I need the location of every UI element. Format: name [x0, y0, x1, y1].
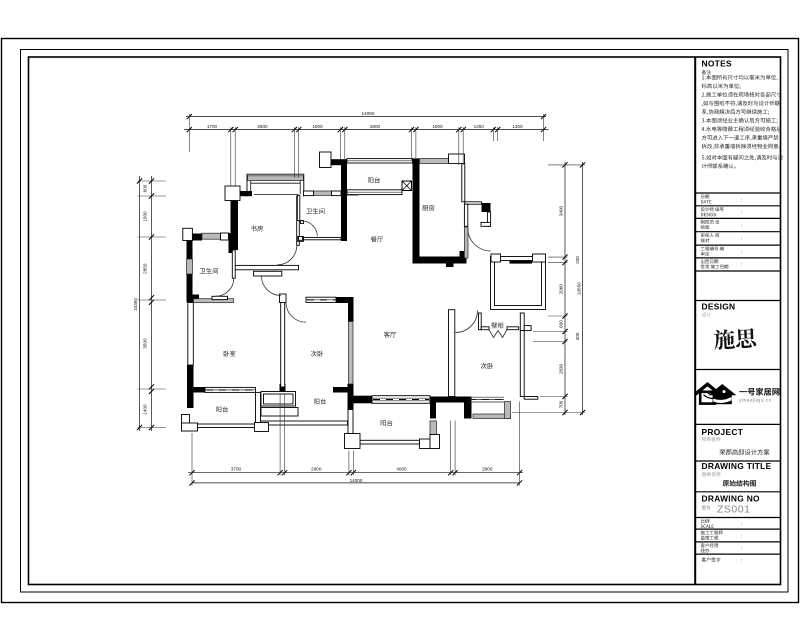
svg-text:PROJECT: PROJECT	[702, 427, 744, 437]
svg-text:1250: 1250	[474, 124, 485, 129]
svg-text::: :	[741, 547, 742, 552]
svg-text::: :	[741, 534, 742, 539]
svg-text::: :	[741, 237, 742, 242]
svg-text:10350: 10350	[133, 298, 138, 311]
svg-text:2800: 2800	[482, 467, 493, 472]
svg-text:1400: 1400	[142, 404, 147, 415]
svg-text::: :	[741, 523, 742, 528]
svg-text:2900: 2900	[311, 467, 322, 472]
svg-text:600: 600	[559, 320, 564, 328]
svg-text:200: 200	[575, 256, 580, 264]
svg-text:yihaojiaju.cn: yihaojiaju.cn	[739, 397, 772, 402]
svg-text:600: 600	[142, 184, 147, 192]
svg-text::: :	[741, 559, 742, 564]
svg-text:1500: 1500	[142, 211, 147, 222]
svg-text:NOTES: NOTES	[702, 59, 732, 69]
svg-text:2060: 2060	[559, 284, 564, 295]
svg-text:14000: 14000	[350, 478, 363, 483]
svg-text::: :	[741, 211, 742, 216]
svg-text::: :	[741, 263, 742, 268]
svg-text:400: 400	[575, 332, 580, 340]
svg-text:1700: 1700	[207, 124, 218, 129]
svg-text:DESIGN: DESIGN	[702, 302, 736, 312]
svg-text:1900: 1900	[432, 124, 443, 129]
svg-text:1300: 1300	[512, 124, 523, 129]
svg-text:1900: 1900	[312, 124, 323, 129]
svg-text::: :	[741, 224, 742, 229]
svg-text:3700: 3700	[231, 467, 242, 472]
svg-text:DRAWING NO: DRAWING NO	[702, 494, 761, 504]
svg-text:3500: 3500	[142, 338, 147, 349]
svg-text:2850: 2850	[142, 263, 147, 274]
svg-text::: :	[741, 250, 742, 255]
svg-text:4000: 4000	[396, 467, 407, 472]
svg-text:3400: 3400	[559, 205, 564, 216]
svg-text:2600: 2600	[257, 124, 268, 129]
svg-text:2830: 2830	[559, 363, 564, 374]
svg-text:ZS001: ZS001	[717, 503, 750, 515]
svg-text:14050: 14050	[362, 111, 375, 116]
svg-text:10550: 10550	[577, 282, 582, 295]
svg-text::: :	[741, 198, 742, 203]
svg-text:2800: 2800	[370, 124, 381, 129]
svg-text:700: 700	[559, 400, 564, 408]
svg-text:DRAWING TITLE: DRAWING TITLE	[702, 461, 772, 471]
